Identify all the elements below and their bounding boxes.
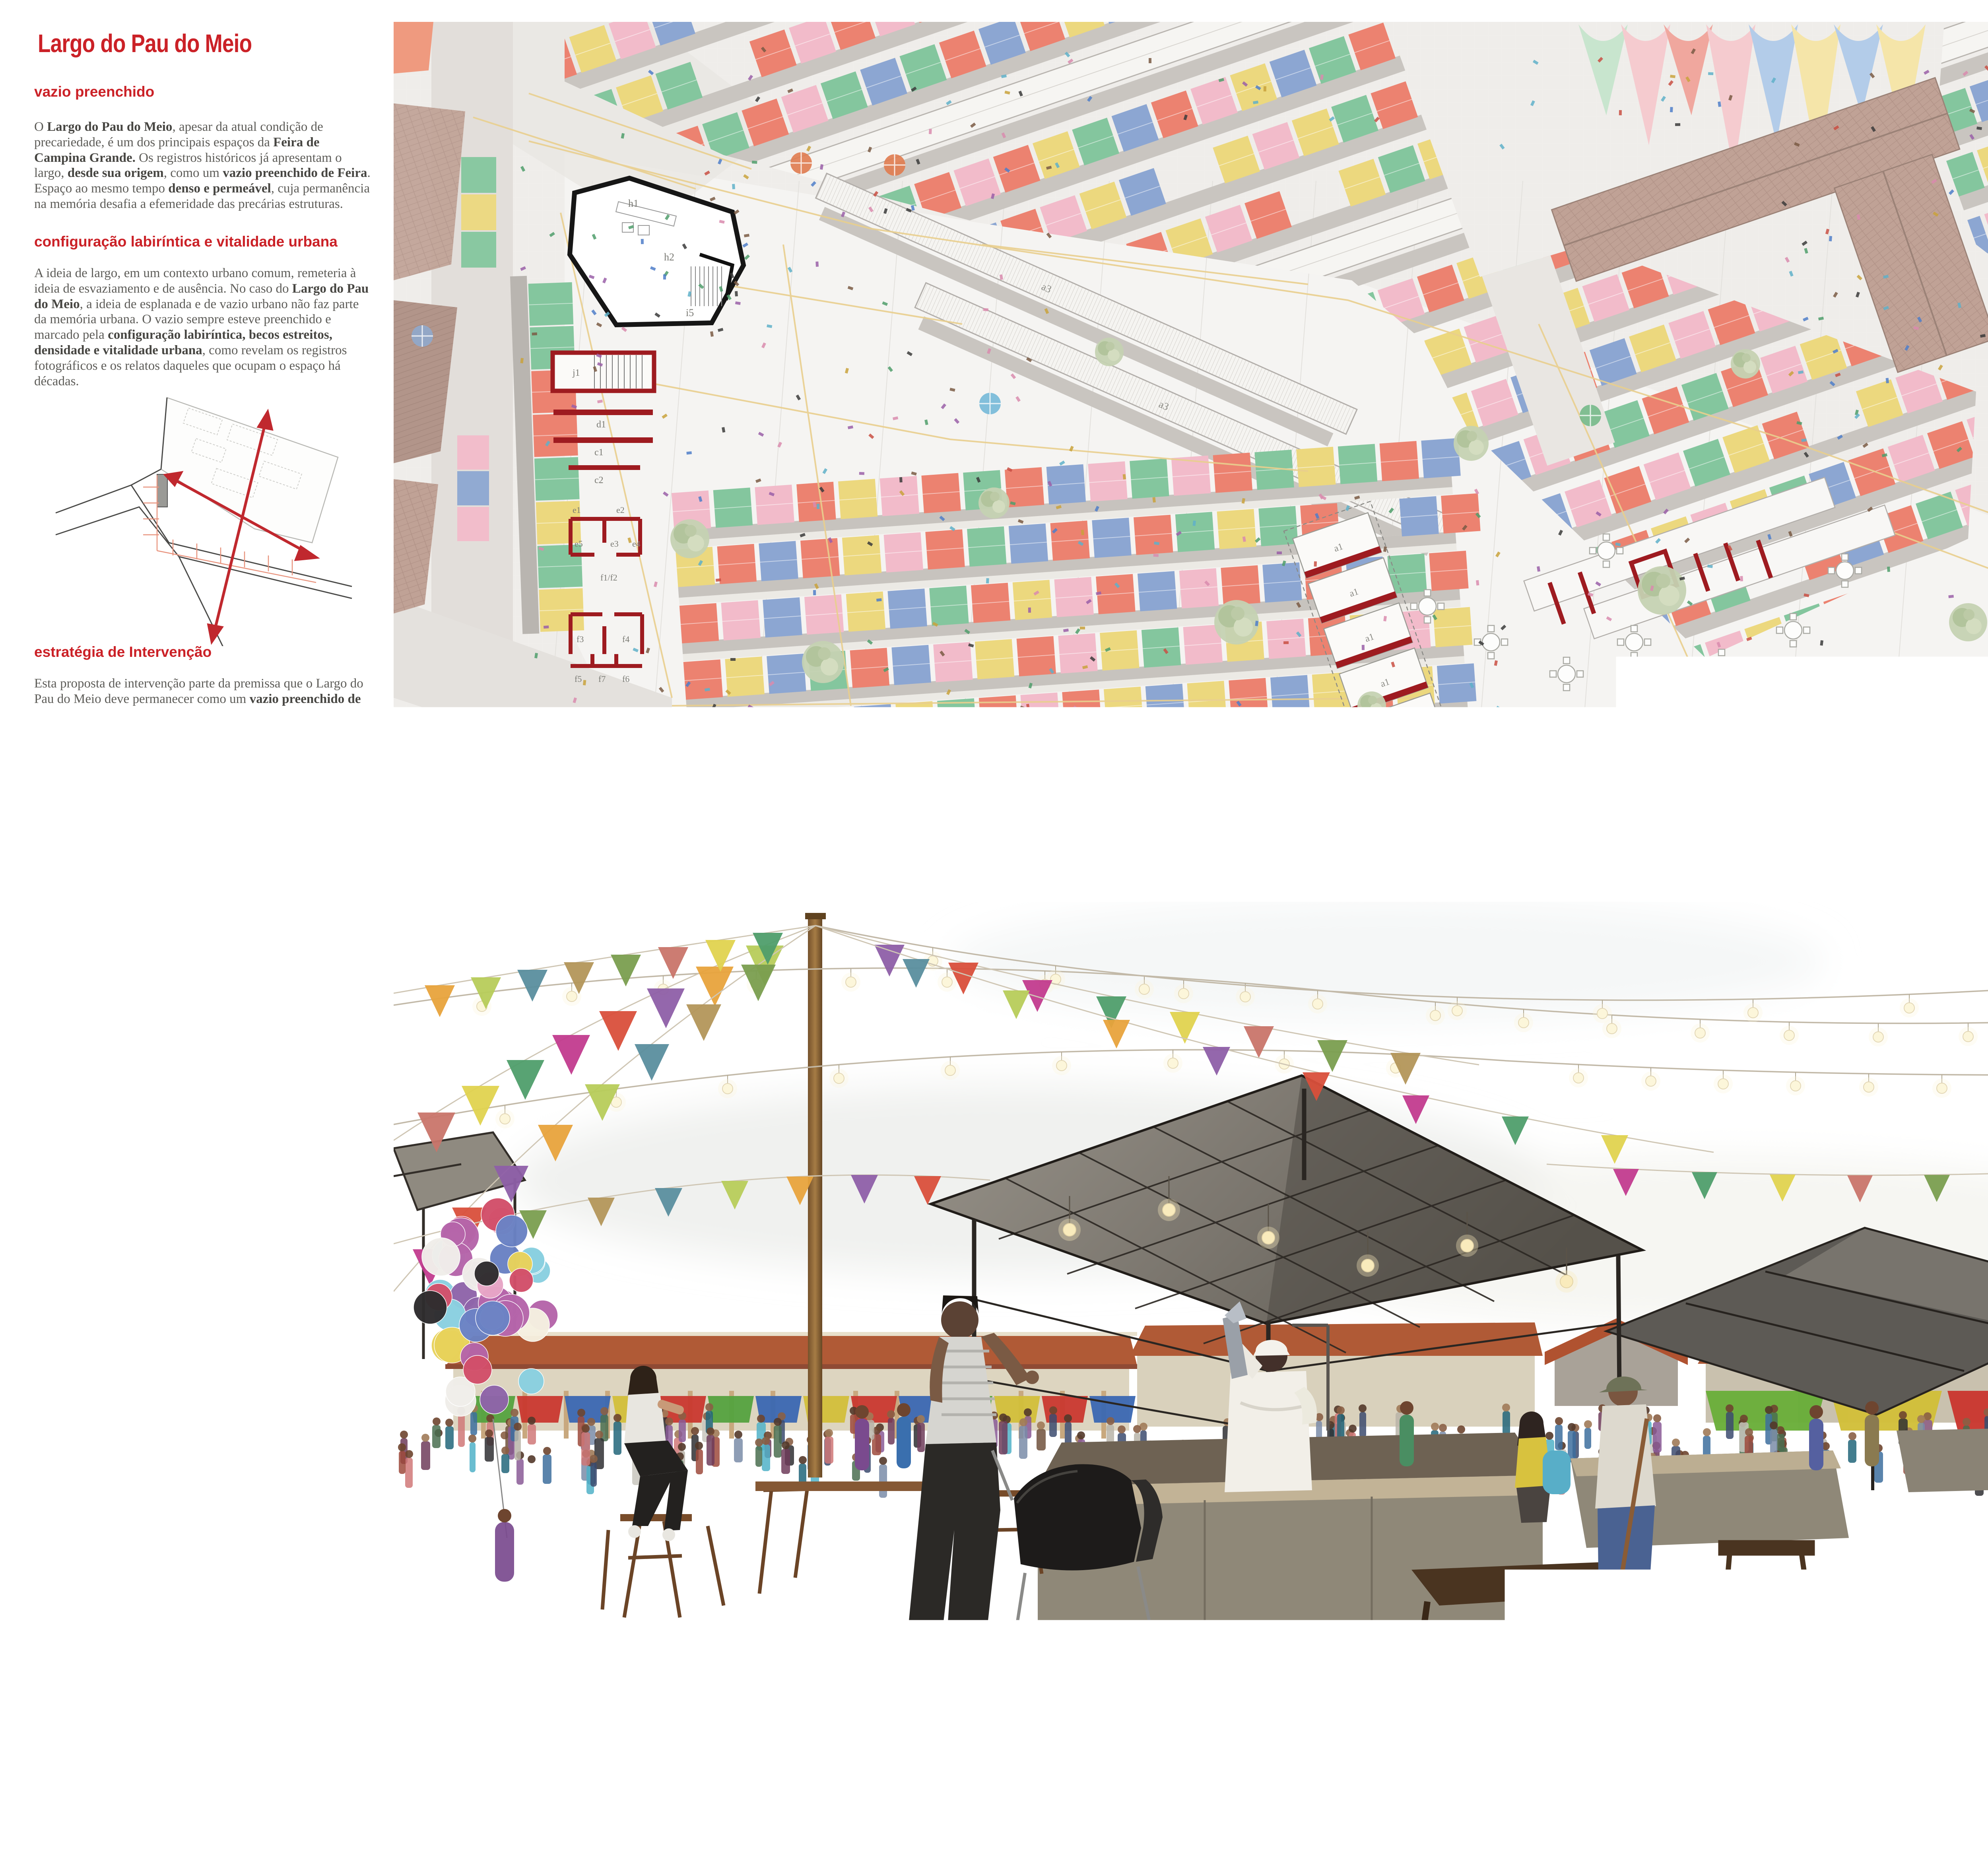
svg-text:e1: e1 [573, 505, 581, 515]
svg-text:a3: a3 [1237, 745, 1246, 755]
svg-text:f3: f3 [577, 634, 584, 644]
svg-text:a3: a3 [833, 745, 843, 755]
svg-text:h2: h2 [664, 251, 674, 263]
svg-text:0: 0 [1837, 770, 1842, 782]
svg-text:c1: c1 [594, 447, 604, 458]
svg-text:50: 50 [1958, 770, 1969, 782]
svg-text:e4: e4 [632, 539, 641, 549]
svg-text:f7: f7 [598, 674, 606, 684]
svg-text:f6: f6 [622, 674, 629, 684]
svg-text:d1: d1 [596, 419, 606, 430]
svg-text:e5: e5 [575, 539, 583, 549]
svg-text:h1: h1 [628, 198, 639, 209]
svg-text:escala 1:250: escala 1:250 [397, 783, 483, 800]
svg-text:f1/f2: f1/f2 [600, 573, 617, 582]
svg-text:EDIFÍCIO PAU DO MEIO E: EDIFÍCIO PAU DO MEIO E [1648, 1702, 1988, 1777]
svg-text:a3: a3 [1637, 745, 1646, 755]
svg-text:c2: c2 [594, 475, 604, 485]
svg-text:25: 25 [1897, 770, 1907, 782]
svg-text:i5: i5 [686, 307, 694, 318]
svg-text:j1: j1 [572, 368, 580, 378]
svg-text:LARGO DO PAU DO MEIO: LARGO DO PAU DO MEIO [1638, 1777, 1988, 1852]
svg-text:e3: e3 [610, 539, 619, 549]
svg-text:PB: PB [752, 1764, 767, 1777]
svg-text:f5: f5 [575, 674, 582, 684]
svg-text:e2: e2 [616, 505, 625, 515]
svg-text:f4: f4 [622, 634, 629, 644]
svg-text:planta do largo e edifício do: planta do largo e edifício do pau do mei… [397, 760, 722, 779]
